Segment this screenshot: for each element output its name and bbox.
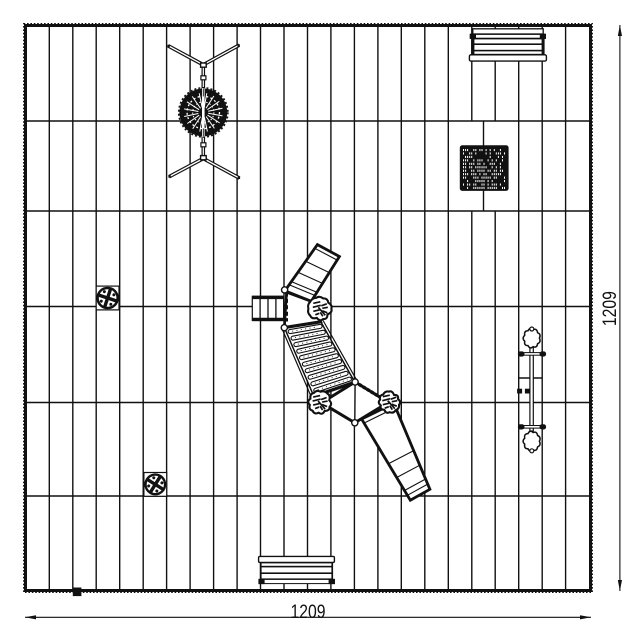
svg-text:1209: 1209 [291, 602, 326, 623]
svg-text:1209: 1209 [600, 291, 621, 326]
